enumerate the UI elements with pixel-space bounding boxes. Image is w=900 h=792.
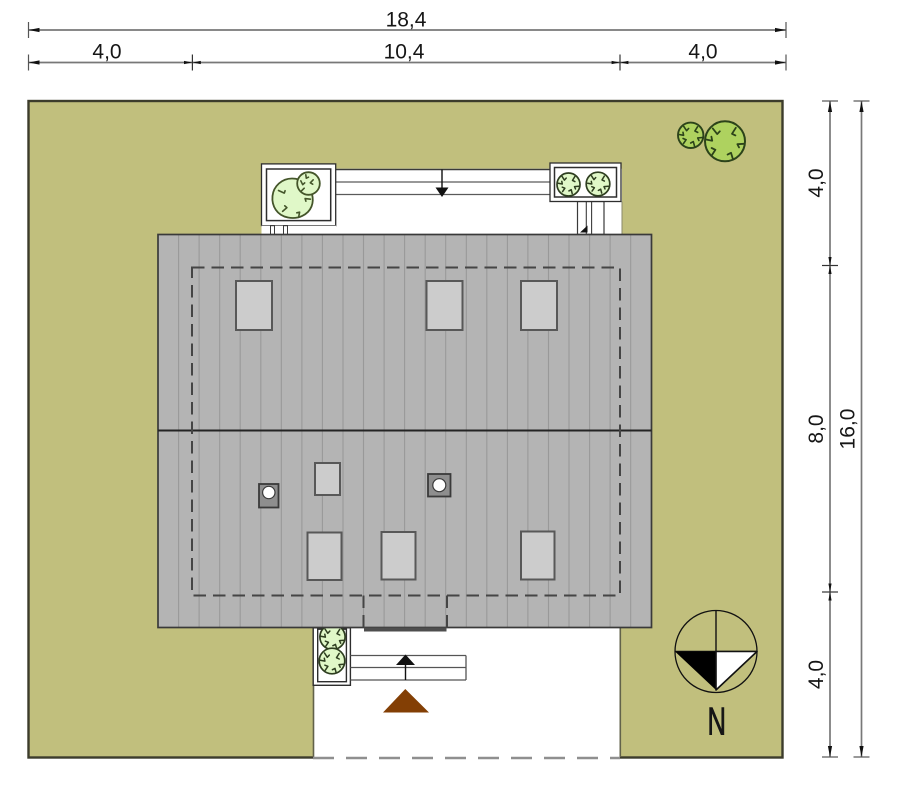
svg-text:18,4: 18,4 [386,9,427,32]
svg-text:16,0: 16,0 [837,409,860,450]
svg-text:4,0: 4,0 [92,41,121,64]
svg-text:10,4: 10,4 [384,41,425,64]
svg-text:4,0: 4,0 [805,660,828,689]
svg-text:N: N [708,701,727,744]
svg-text:8,0: 8,0 [805,414,828,443]
svg-text:4,0: 4,0 [805,168,828,197]
svg-text:4,0: 4,0 [688,41,717,64]
